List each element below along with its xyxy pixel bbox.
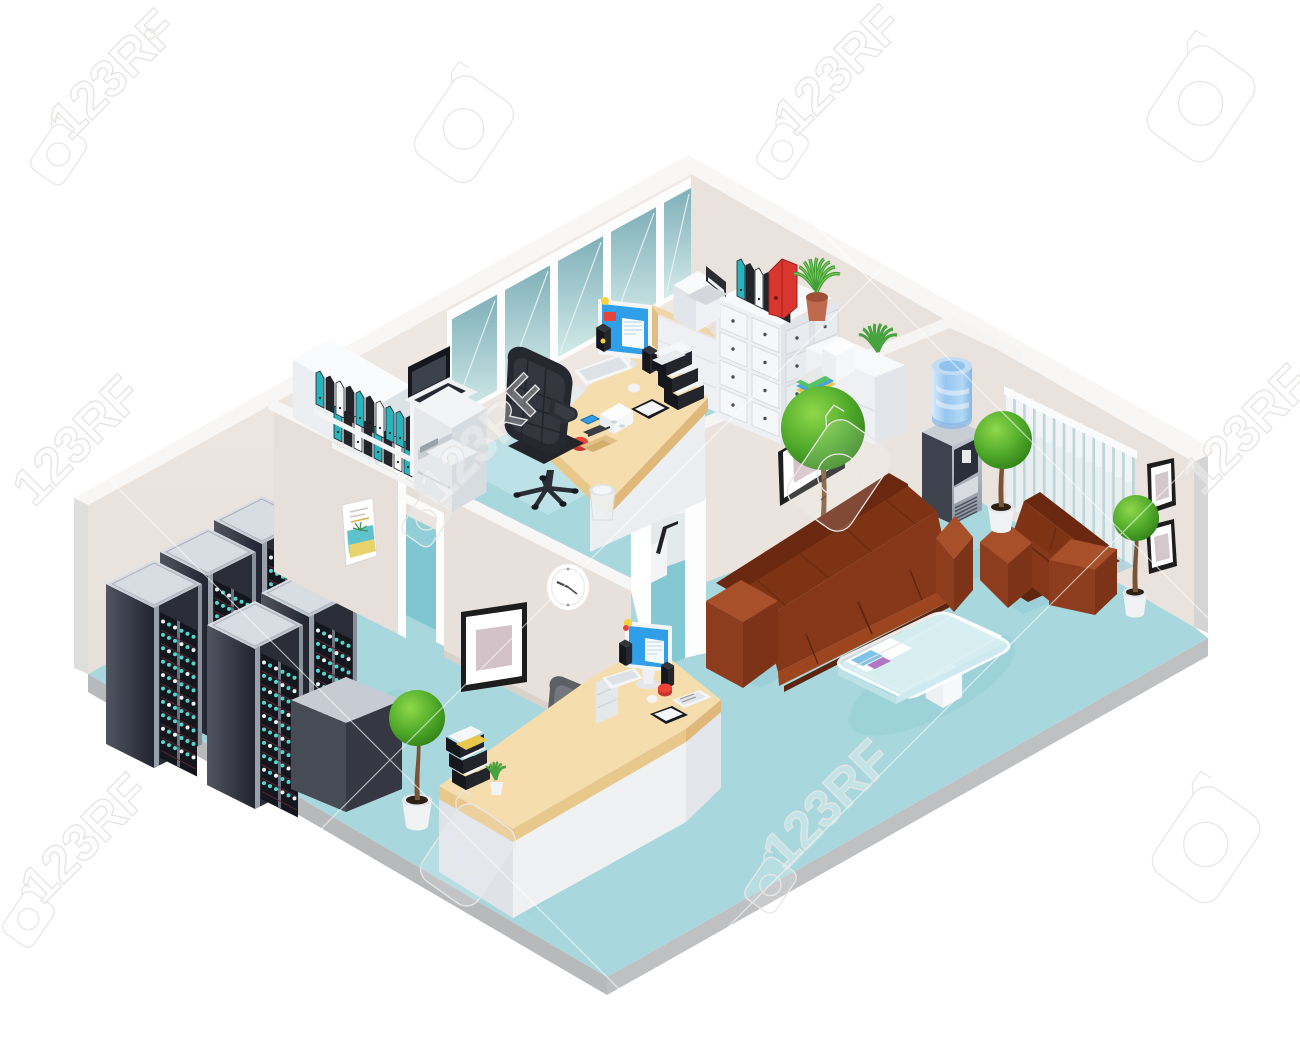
svg-text:123RF: 123RF (1170, 354, 1300, 505)
svg-text:123RF: 123RF (37, 0, 188, 150)
svg-text:123RF: 123RF (762, 0, 913, 146)
svg-text:123RF: 123RF (9, 763, 160, 914)
